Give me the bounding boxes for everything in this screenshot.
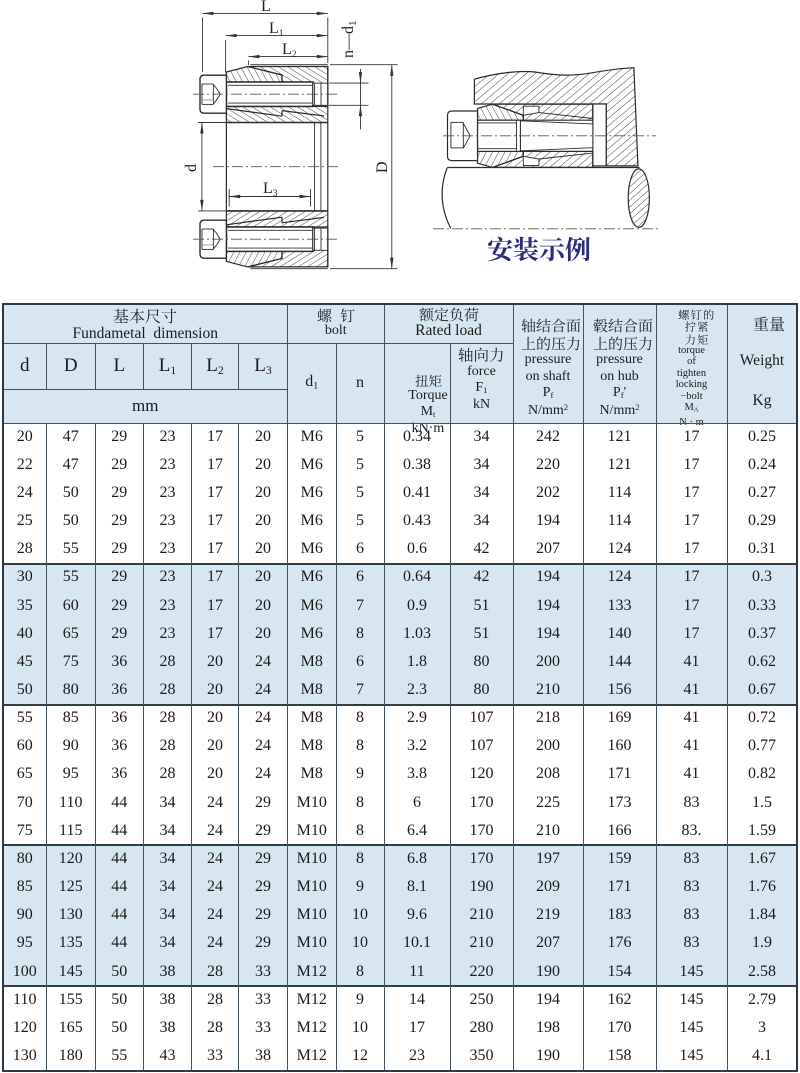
svg-text:D: D bbox=[374, 161, 391, 173]
svg-text:d: d bbox=[183, 164, 200, 172]
svg-text:L1: L1 bbox=[269, 20, 284, 39]
svg-text:L2: L2 bbox=[282, 41, 297, 60]
svg-text:L: L bbox=[261, 0, 271, 15]
svg-text:n—d1: n—d1 bbox=[340, 21, 359, 59]
